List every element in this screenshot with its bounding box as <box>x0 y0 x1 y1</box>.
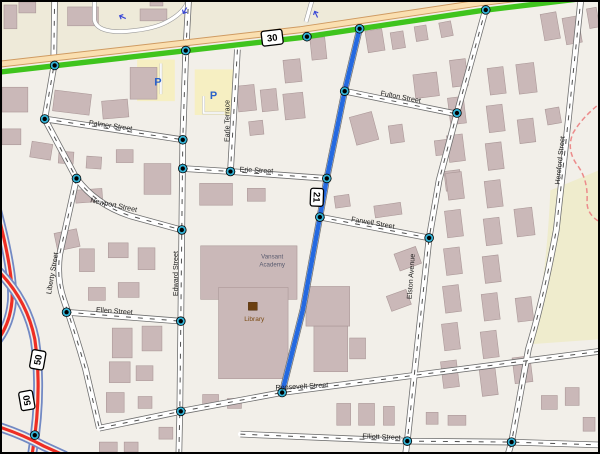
building <box>99 442 117 452</box>
building <box>150 2 163 6</box>
route-shield-21: 21 <box>310 188 324 206</box>
street-label: Elliott Street <box>362 432 401 441</box>
route-node[interactable] <box>424 233 434 243</box>
building <box>124 442 138 452</box>
building <box>483 217 502 245</box>
route-node[interactable] <box>355 24 365 34</box>
building <box>444 209 463 237</box>
building <box>349 112 379 146</box>
building <box>365 29 385 53</box>
building <box>136 366 153 381</box>
building <box>359 403 375 425</box>
route-shield-50: 50 <box>18 390 35 411</box>
building <box>541 396 557 410</box>
zone-east-landuse <box>533 169 598 344</box>
building <box>130 67 157 99</box>
building <box>138 396 152 408</box>
building <box>517 118 536 144</box>
building <box>283 92 305 120</box>
route-node[interactable] <box>40 114 50 124</box>
route-node[interactable] <box>176 316 186 326</box>
building <box>414 25 428 42</box>
building <box>388 124 404 144</box>
building <box>485 142 504 170</box>
route-node[interactable] <box>452 108 462 118</box>
building <box>159 427 173 439</box>
motorway-50[interactable] <box>2 210 66 452</box>
building <box>448 415 466 425</box>
building <box>138 248 155 270</box>
route-node[interactable] <box>181 46 191 56</box>
map-canvas[interactable]: 30215050 Palmer StreetErie StreetEarle T… <box>2 2 598 452</box>
building <box>140 9 167 21</box>
building <box>426 412 438 424</box>
svg-text:30: 30 <box>266 31 278 43</box>
route-node[interactable] <box>50 61 60 71</box>
building <box>374 202 402 218</box>
route-node[interactable] <box>30 430 40 440</box>
route-node[interactable] <box>72 174 82 184</box>
building <box>337 403 351 425</box>
building <box>236 84 256 111</box>
route-node[interactable] <box>340 86 350 96</box>
building <box>516 62 537 94</box>
route-node[interactable] <box>177 225 187 235</box>
building <box>310 37 327 60</box>
route-node[interactable] <box>176 407 186 417</box>
route-node[interactable] <box>178 135 188 145</box>
route-shield-50: 50 <box>29 349 46 370</box>
parking-label: P <box>210 90 217 102</box>
building <box>480 330 499 358</box>
building <box>540 12 560 41</box>
building <box>86 156 102 169</box>
building <box>19 2 36 13</box>
building <box>108 243 128 258</box>
building <box>88 287 105 300</box>
building <box>102 99 129 119</box>
parking-label: P <box>154 76 161 88</box>
route-node[interactable] <box>507 437 517 447</box>
building <box>144 164 171 195</box>
street-label: Earle Terrace <box>223 100 231 142</box>
building <box>545 107 561 125</box>
building <box>30 141 53 160</box>
building <box>443 247 462 275</box>
route-node[interactable] <box>62 307 72 317</box>
academy-label: Vansant <box>261 254 283 261</box>
building <box>314 326 348 372</box>
building <box>200 183 233 205</box>
street-label: Edward Street <box>172 251 180 296</box>
library-label: Library <box>244 316 265 323</box>
route-node[interactable] <box>315 212 325 222</box>
route-node[interactable] <box>178 164 188 174</box>
building <box>439 21 454 38</box>
building <box>334 194 350 208</box>
building <box>2 87 28 112</box>
building <box>486 104 505 132</box>
route-node[interactable] <box>302 32 312 42</box>
building <box>53 90 92 115</box>
building <box>565 388 579 406</box>
building <box>2 129 21 145</box>
building <box>583 417 595 431</box>
building <box>586 7 598 28</box>
building <box>390 31 405 50</box>
building <box>109 362 130 383</box>
building <box>481 293 500 321</box>
building <box>383 406 394 425</box>
svg-text:50: 50 <box>20 394 33 406</box>
building <box>260 88 278 111</box>
building <box>112 328 132 358</box>
building <box>283 59 302 83</box>
building <box>106 393 124 413</box>
route-node[interactable] <box>322 174 332 184</box>
building <box>118 283 139 298</box>
building <box>482 255 501 283</box>
building <box>219 287 289 378</box>
building <box>484 180 503 208</box>
academy-label: Academy <box>259 262 286 269</box>
building <box>441 322 460 350</box>
route-node[interactable] <box>226 167 236 177</box>
building <box>487 67 506 95</box>
svg-text:50: 50 <box>31 354 44 366</box>
building <box>442 285 461 313</box>
building <box>306 286 350 326</box>
route-node[interactable] <box>481 5 491 15</box>
route-shield-30: 30 <box>261 29 284 46</box>
svg-text:21: 21 <box>311 192 322 203</box>
building <box>4 5 17 29</box>
route-node[interactable] <box>403 436 413 446</box>
building <box>445 172 464 200</box>
map-viewport[interactable]: 30215050 Palmer StreetErie StreetEarle T… <box>0 0 600 454</box>
building <box>413 72 440 99</box>
library-icon <box>248 302 257 310</box>
building <box>514 207 535 237</box>
building <box>79 249 94 272</box>
building <box>515 296 534 322</box>
building <box>247 188 265 201</box>
building <box>350 338 366 359</box>
building <box>116 150 133 163</box>
building <box>142 326 162 351</box>
building <box>249 120 264 135</box>
building <box>479 368 498 396</box>
